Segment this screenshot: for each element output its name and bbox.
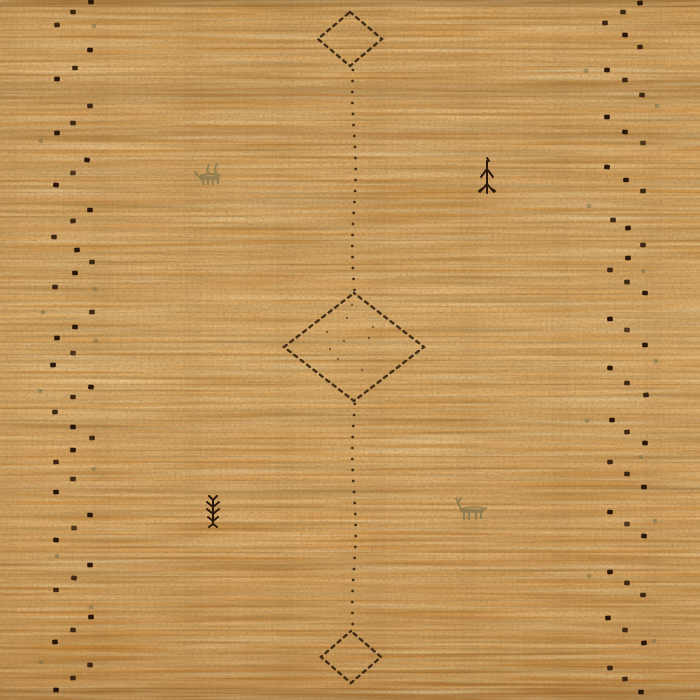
- olive-fleck: [654, 359, 658, 363]
- center-line-dot: [352, 124, 355, 127]
- edge-knot-right: [622, 628, 628, 633]
- edge-knot-right: [625, 256, 631, 261]
- edge-knot-left: [87, 663, 93, 668]
- edge-knot-right: [622, 33, 628, 38]
- center-line-dot: [351, 469, 354, 472]
- edge-knot-right: [641, 640, 647, 645]
- edge-knot-left: [53, 490, 59, 495]
- edge-knot-left: [52, 639, 58, 644]
- edge-knot-right: [642, 441, 648, 446]
- center-line-dot: [353, 289, 356, 292]
- rug-art-layer: [0, 0, 700, 700]
- edge-knot-left: [54, 336, 60, 341]
- olive-fleck: [652, 639, 656, 643]
- edge-knot-left: [53, 537, 59, 542]
- center-line-dot: [351, 102, 354, 105]
- center-line-dot: [352, 212, 355, 215]
- center-line-dot: [351, 234, 354, 237]
- edge-knot-right: [622, 129, 628, 134]
- edge-knot-right: [640, 141, 646, 146]
- center-line-dot: [354, 179, 357, 182]
- center-line-dot: [352, 267, 355, 270]
- edge-knot-right: [605, 615, 611, 620]
- edge-knot-left: [84, 157, 90, 162]
- edge-knot-left: [88, 384, 94, 389]
- olive-fleck: [92, 24, 96, 28]
- edge-knot-left: [52, 409, 58, 414]
- olive-fleck: [93, 287, 97, 291]
- olive-fleck: [89, 605, 93, 609]
- edge-knot-right: [641, 485, 647, 490]
- edge-knot-left: [87, 104, 93, 109]
- center-line-dot: [353, 414, 356, 417]
- olive-fleck: [653, 519, 657, 523]
- edge-knot-right: [609, 418, 615, 423]
- edge-knot-left: [70, 477, 76, 482]
- center-line-dot: [353, 568, 356, 571]
- edge-knot-right: [642, 291, 648, 296]
- diamond-inner-speck: [326, 331, 328, 333]
- edge-knot-right: [624, 429, 630, 434]
- edge-knot-left: [89, 435, 95, 440]
- edge-knot-left: [70, 395, 76, 400]
- olive-fleck: [655, 104, 659, 108]
- edge-knot-left: [70, 121, 76, 126]
- edge-knot-right: [607, 510, 613, 515]
- edge-knot-left: [53, 588, 59, 593]
- edge-knot-right: [643, 392, 649, 397]
- edge-knot-left: [70, 676, 76, 681]
- edge-knot-right: [607, 268, 613, 273]
- center-line-dot: [351, 612, 354, 615]
- edge-knot-left: [87, 513, 93, 518]
- center-line-dot: [354, 157, 357, 160]
- center-line-dot: [351, 80, 354, 83]
- center-line-dot: [351, 91, 354, 94]
- edge-knot-left: [51, 235, 57, 240]
- edge-knot-right: [624, 580, 630, 585]
- edge-knot-left: [72, 325, 78, 330]
- edge-knot-left: [70, 425, 76, 430]
- edge-knot-right: [638, 690, 644, 695]
- rug-photo: [0, 0, 700, 700]
- olive-fleck: [641, 269, 645, 273]
- diamond-inner-speck: [343, 340, 345, 342]
- center-line-dot: [351, 623, 354, 626]
- diamond-inner-speck: [372, 326, 374, 328]
- edge-knot-right: [639, 93, 645, 98]
- center-line-dot: [354, 168, 357, 171]
- olive-fleck: [39, 139, 43, 143]
- edge-knot-right: [607, 666, 613, 671]
- center-line-dot: [353, 557, 356, 560]
- edge-knot-right: [624, 522, 630, 527]
- edge-knot-left: [87, 208, 93, 213]
- edge-knot-right: [604, 115, 610, 120]
- diamond-inner-speck: [368, 337, 370, 339]
- edge-knot-right: [610, 218, 616, 223]
- diamond-inner-speck: [329, 348, 331, 350]
- center-line-dot: [352, 480, 355, 483]
- diamond-inner-speck: [346, 317, 348, 319]
- center-line-dot: [352, 278, 355, 281]
- olive-fleck: [92, 467, 96, 471]
- olive-fleck: [587, 574, 591, 578]
- edge-knot-left: [50, 363, 56, 368]
- olive-fleck: [38, 389, 42, 393]
- edge-knot-left: [54, 77, 60, 82]
- edge-knot-left: [88, 614, 94, 619]
- center-line-dot: [354, 190, 357, 193]
- edge-knot-right: [604, 164, 610, 169]
- olive-fleck: [587, 204, 591, 208]
- center-line-dot: [352, 425, 355, 428]
- center-line-dot: [353, 491, 356, 494]
- center-line-dot: [351, 447, 354, 450]
- edge-knot-right: [604, 68, 610, 73]
- edge-knot-left: [53, 688, 59, 693]
- edge-knot-right: [624, 327, 630, 332]
- edge-knot-right: [602, 20, 608, 25]
- center-line-dot: [353, 201, 356, 204]
- center-line-dot: [351, 436, 354, 439]
- edge-knot-right: [607, 317, 613, 322]
- center-line-dot: [351, 256, 354, 259]
- edge-knot-left: [71, 575, 77, 580]
- edge-knot-right: [623, 178, 629, 183]
- edge-knot-left: [70, 628, 76, 633]
- edge-knot-left: [70, 171, 76, 176]
- edge-knot-right: [624, 280, 630, 285]
- center-line-dot: [352, 223, 355, 226]
- edge-knot-right: [620, 10, 626, 15]
- olive-fleck: [41, 310, 45, 314]
- edge-knot-right: [607, 460, 613, 465]
- edge-knot-right: [622, 78, 628, 83]
- olive-fleck: [639, 455, 643, 459]
- edge-knot-right: [640, 188, 646, 193]
- center-line-dot: [354, 524, 357, 527]
- edge-knot-right: [625, 225, 631, 230]
- edge-knot-right: [622, 677, 628, 682]
- edge-knot-left: [72, 271, 78, 276]
- edge-knot-right: [624, 381, 630, 386]
- center-line-dot: [352, 113, 355, 116]
- center-line-dot: [354, 513, 357, 516]
- edge-knot-left: [54, 131, 60, 136]
- edge-knot-left: [52, 285, 58, 290]
- olive-fleck: [39, 660, 43, 664]
- edge-knot-left: [87, 48, 93, 53]
- edge-knot-left: [53, 460, 59, 465]
- center-line-dot: [351, 601, 354, 604]
- edge-knot-right: [641, 533, 647, 538]
- center-line-dot: [354, 535, 357, 538]
- center-line-dot: [353, 135, 356, 138]
- edge-knot-left: [70, 350, 76, 355]
- edge-knot-left: [72, 66, 78, 71]
- olive-fleck: [55, 554, 59, 558]
- center-line-dot: [354, 546, 357, 549]
- center-line-dot: [353, 403, 356, 406]
- center-line-dot: [354, 146, 357, 149]
- edge-knot-right: [607, 570, 613, 575]
- center-line-dot: [351, 245, 354, 248]
- edge-knot-right: [640, 593, 646, 598]
- edge-knot-left: [71, 526, 77, 531]
- edge-knot-right: [607, 365, 613, 370]
- edge-knot-right: [642, 343, 648, 348]
- edge-knot-right: [637, 0, 643, 5]
- olive-fleck: [584, 69, 588, 73]
- edge-knot-left: [74, 247, 80, 252]
- wool-grain-texture: [0, 0, 700, 700]
- edge-knot-left: [70, 448, 76, 453]
- edge-knot-left: [54, 22, 60, 27]
- edge-knot-left: [89, 310, 95, 315]
- center-line-dot: [351, 458, 354, 461]
- edge-knot-right: [640, 243, 646, 248]
- edge-knot-left: [87, 563, 93, 568]
- edge-knot-left: [70, 218, 76, 223]
- edge-knot-right: [637, 45, 643, 50]
- edge-knot-left: [89, 260, 95, 265]
- center-line-dot: [352, 579, 355, 582]
- center-line-dot: [353, 502, 356, 505]
- olive-fleck: [585, 419, 589, 423]
- edge-knot-right: [624, 472, 630, 477]
- edge-knot-left: [70, 10, 76, 15]
- center-line-dot: [352, 69, 355, 72]
- diamond-inner-speck: [351, 304, 353, 306]
- diamond-inner-speck: [337, 358, 339, 360]
- edge-knot-left: [53, 182, 59, 187]
- diamond-inner-speck: [361, 369, 363, 371]
- olive-fleck: [94, 339, 98, 343]
- edge-knot-left: [88, 0, 94, 5]
- center-line-dot: [351, 590, 354, 593]
